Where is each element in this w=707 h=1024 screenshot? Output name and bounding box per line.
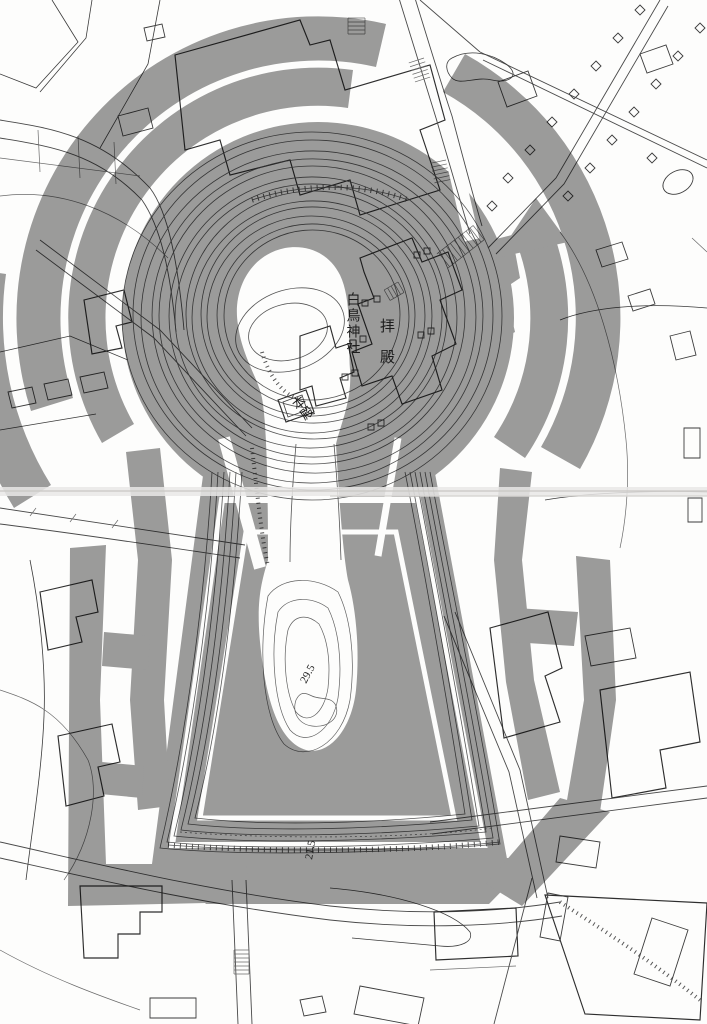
label-shrine-name: 白鳥神社 [345,292,361,356]
map-canvas: 白鳥神社 拝殿 本殿 29.5 21.5 [0,0,707,1024]
label-haiden: 拝殿 [378,318,395,380]
keyhole-mound-shape [122,122,534,904]
keyhole-highlight-overlay [0,16,620,906]
paper-fold-crease [0,487,707,496]
kofun-survey-map: 白鳥神社 拝殿 本殿 29.5 21.5 [0,0,707,1024]
step-band-left-inner [126,448,172,810]
